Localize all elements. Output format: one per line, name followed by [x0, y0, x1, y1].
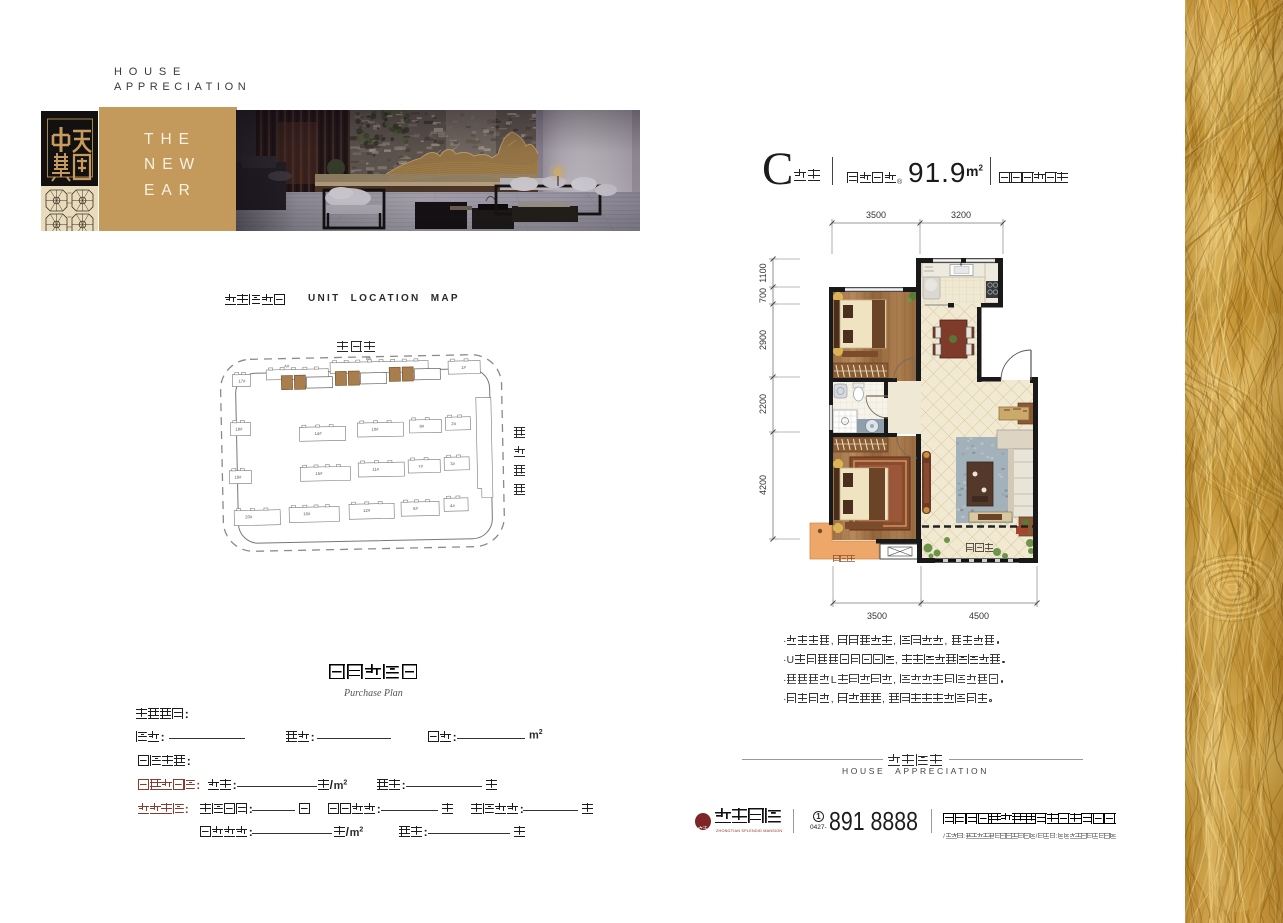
svg-text:19#: 19# — [234, 475, 242, 480]
svg-text:8#: 8# — [419, 424, 424, 429]
svg-text:11#: 11# — [372, 467, 379, 472]
svg-text:10#: 10# — [371, 427, 379, 432]
svg-text:3#: 3# — [450, 461, 455, 466]
svg-text:2#: 2# — [451, 421, 456, 426]
svg-text:18#: 18# — [235, 426, 243, 431]
svg-text:16#: 16# — [303, 511, 311, 516]
svg-text:A#: A# — [284, 363, 290, 368]
svg-text:15#: 15# — [315, 471, 323, 476]
svg-text:20#: 20# — [245, 514, 253, 519]
svg-text:6#: 6# — [413, 506, 418, 511]
svg-text:14#: 14# — [314, 431, 322, 436]
svg-text:4#: 4# — [450, 503, 455, 508]
svg-text:B#: B# — [366, 356, 372, 361]
svg-text:17#: 17# — [238, 378, 246, 383]
svg-text:1#: 1# — [461, 365, 466, 370]
svg-text:12#: 12# — [363, 508, 371, 513]
svg-text:7#: 7# — [418, 464, 423, 469]
